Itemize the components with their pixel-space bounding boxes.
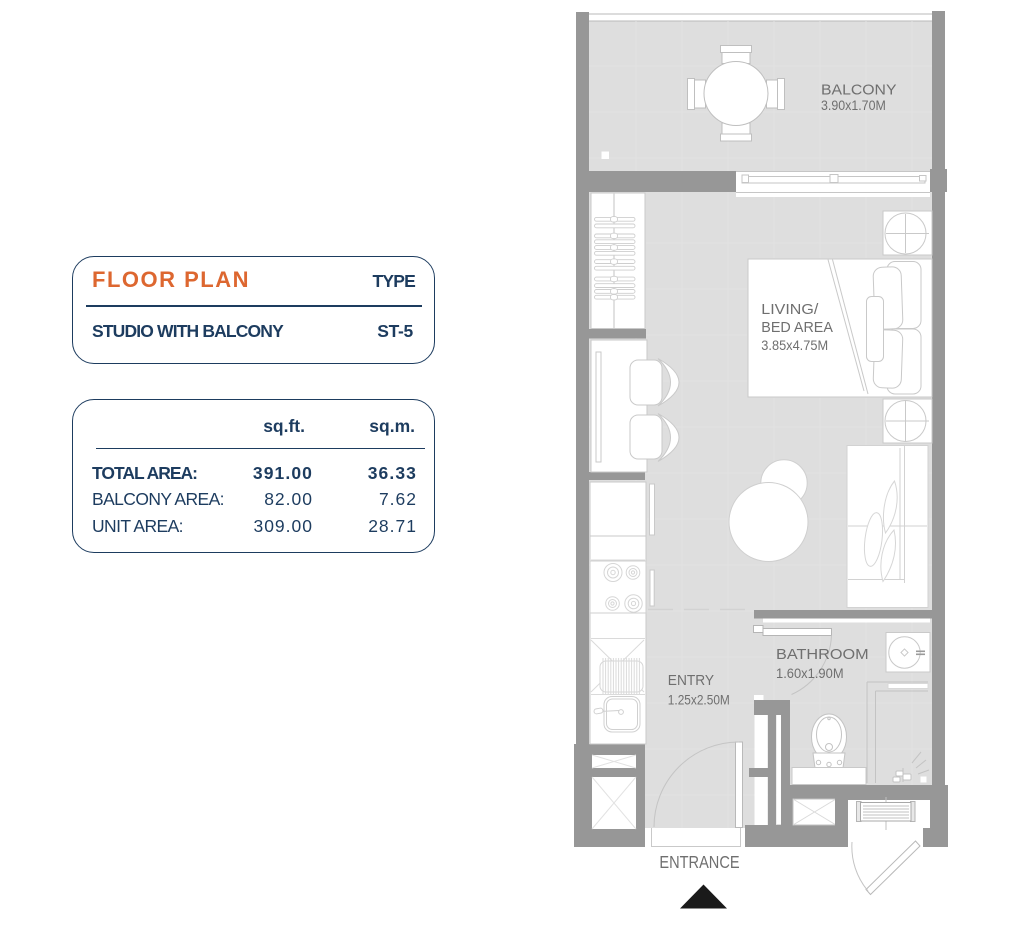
svg-text:ENTRY: ENTRY <box>668 672 714 689</box>
svg-text:1.25x2.50M: 1.25x2.50M <box>668 692 730 707</box>
svg-text:BED AREA: BED AREA <box>761 319 833 336</box>
svg-text:LIVING/: LIVING/ <box>761 301 819 318</box>
svg-text:BALCONY: BALCONY <box>821 81 897 98</box>
svg-text:BATHROOM: BATHROOM <box>776 646 869 663</box>
svg-text:1.60x1.90M: 1.60x1.90M <box>776 666 844 681</box>
svg-text:3.90x1.70M: 3.90x1.70M <box>821 98 886 113</box>
svg-text:ENTRANCE: ENTRANCE <box>659 852 739 872</box>
svg-text:3.85x4.75M: 3.85x4.75M <box>761 338 828 353</box>
